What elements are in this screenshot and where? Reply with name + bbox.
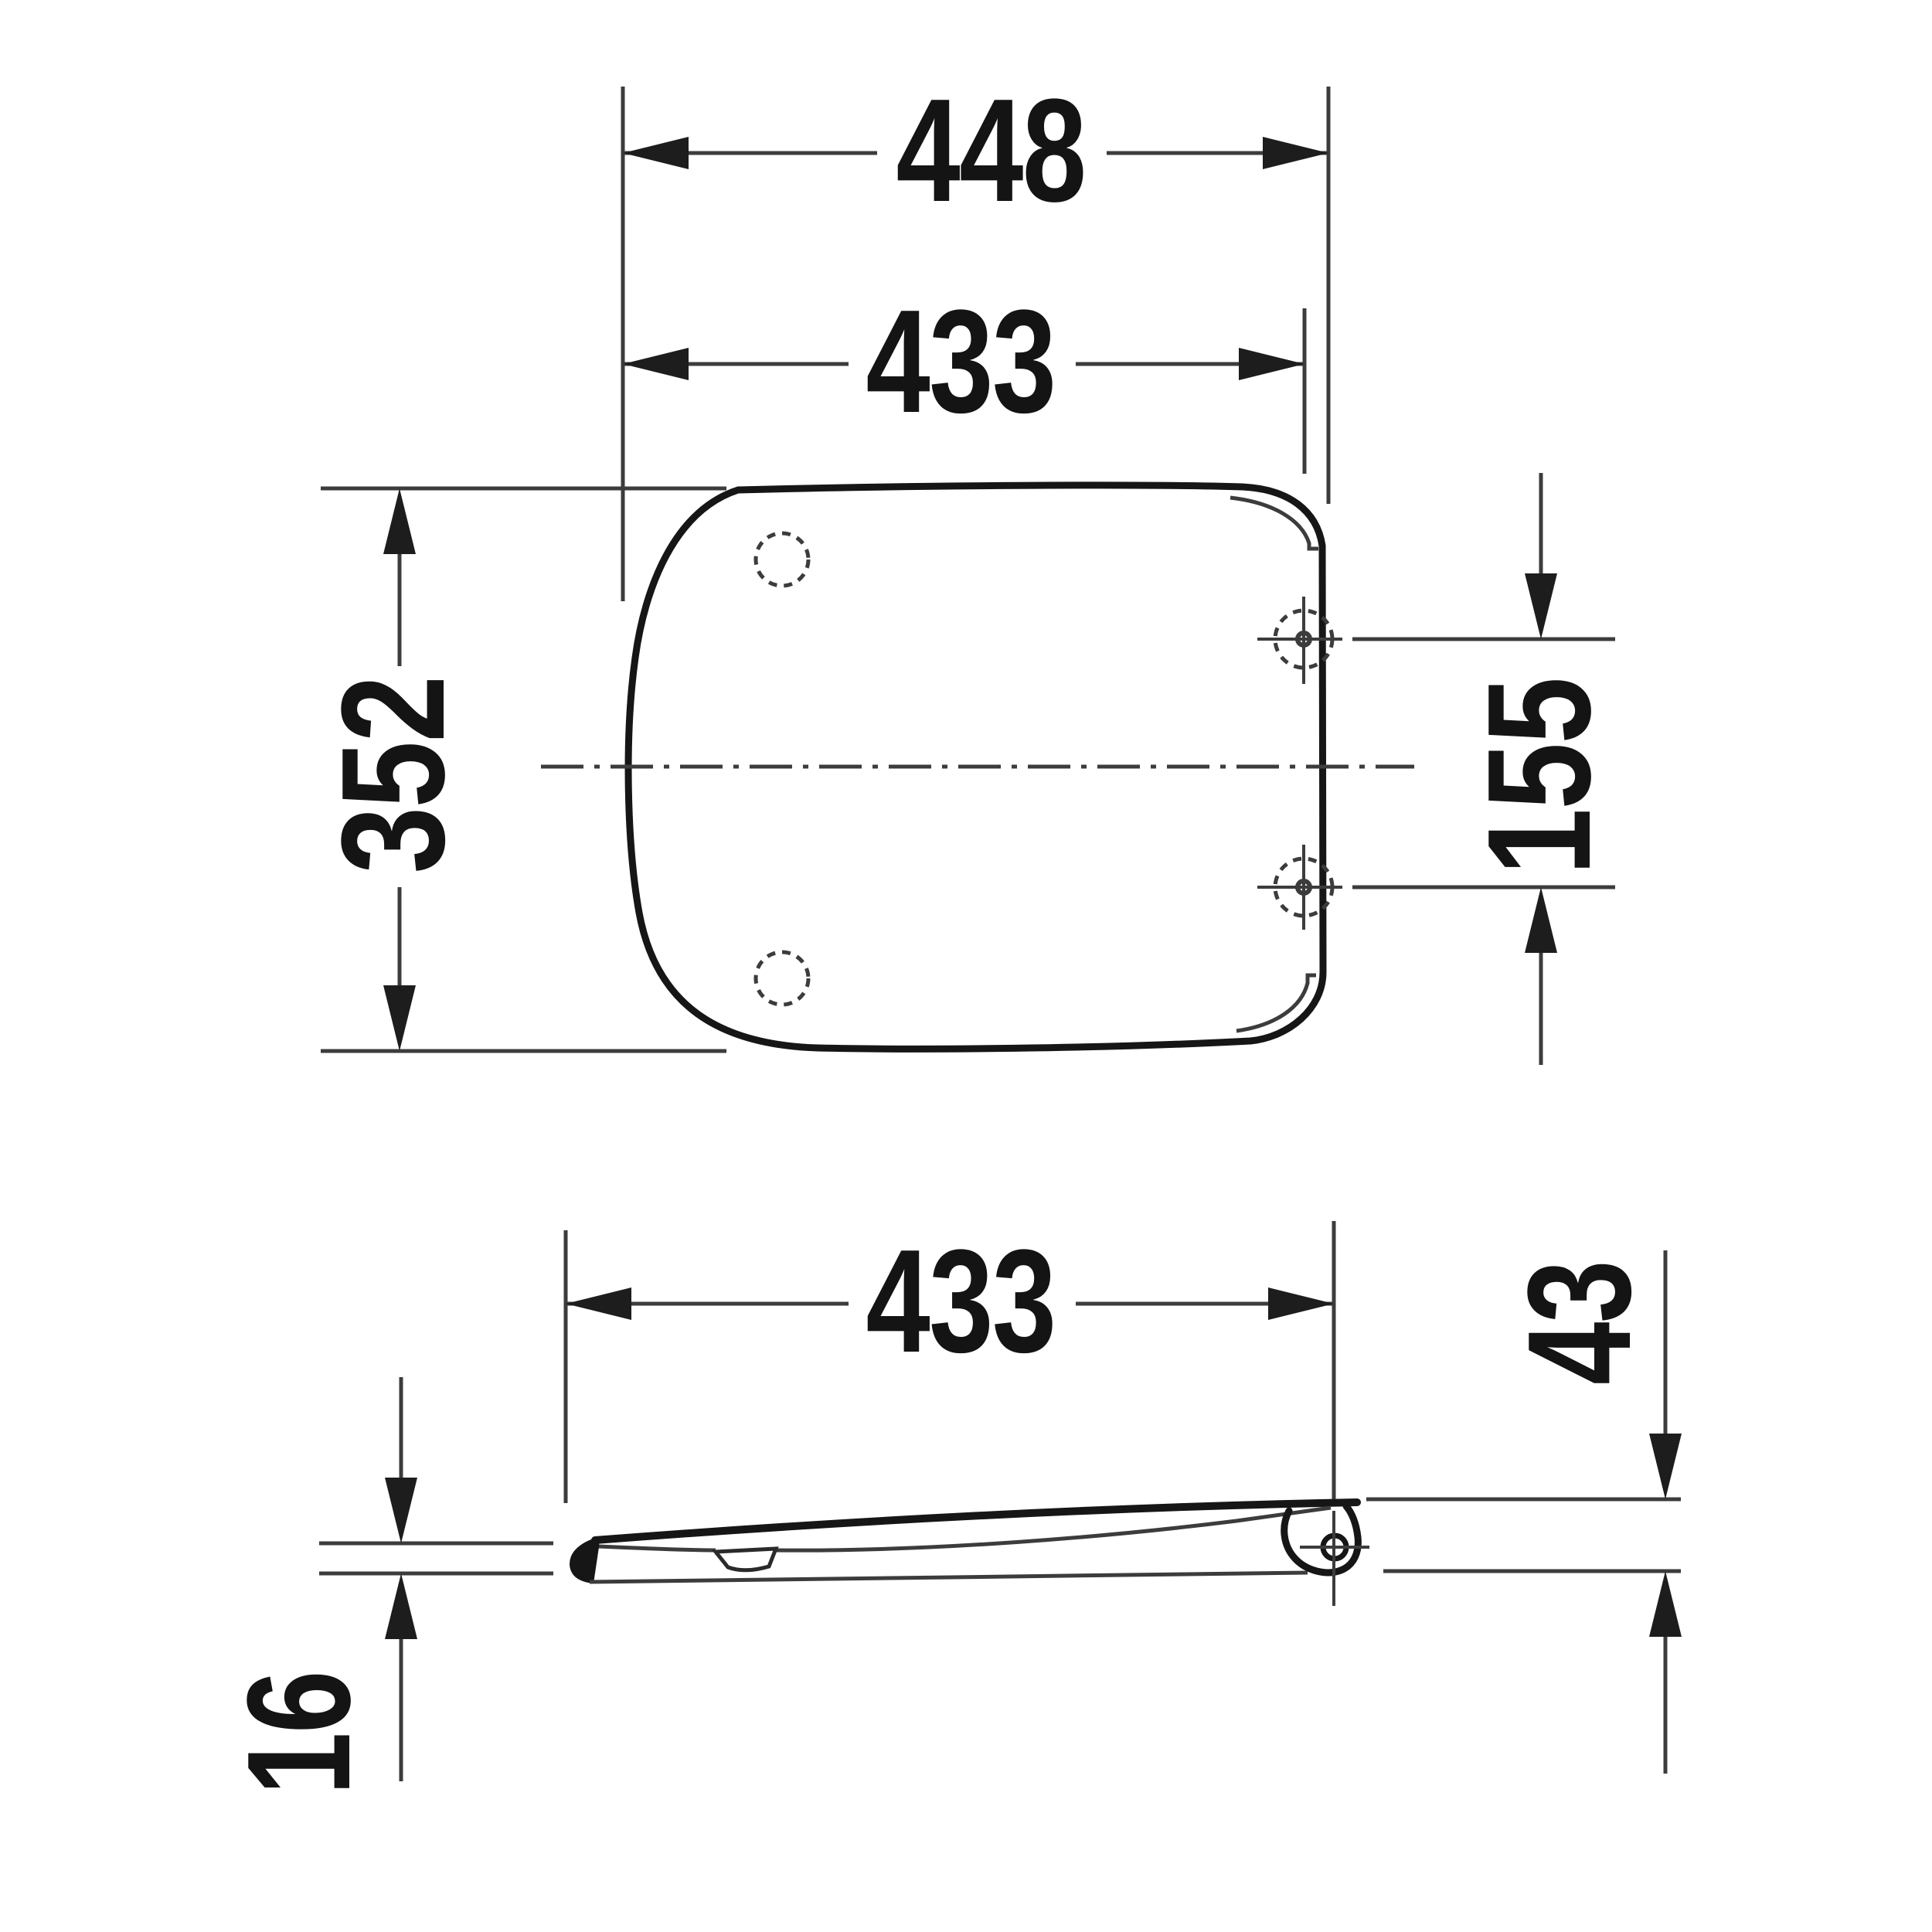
hinge-hole-bottom — [1257, 845, 1342, 930]
dim-43-label: 43 — [1498, 1261, 1662, 1385]
dimension-drawing-canvas: 448 433 352 155 — [0, 0, 1932, 1932]
dim-433-side-label: 433 — [866, 1219, 1056, 1383]
dim-433-plan-arrow-right — [1239, 348, 1304, 380]
dim-16-label: 16 — [217, 1672, 381, 1795]
bumper-bottom-left — [756, 952, 808, 1005]
dim-43: 43 — [1366, 1250, 1682, 1774]
lid-edge-bottom-right — [1236, 975, 1316, 1031]
dim-155-arrow-up — [1525, 887, 1557, 953]
dim-155: 155 — [1352, 473, 1621, 1065]
side-bottom-edge — [590, 1573, 1308, 1582]
dim-448-arrow-left — [623, 137, 689, 169]
dim-433-side: 433 — [566, 1219, 1334, 1503]
dim-43-arrow-down — [1649, 1434, 1682, 1499]
dim-155-label: 155 — [1458, 679, 1621, 876]
dim-43-arrow-up — [1649, 1571, 1682, 1637]
dim-433-side-arrow-right — [1268, 1287, 1334, 1320]
dim-352: 352 — [311, 488, 726, 1051]
bumper-top-left — [756, 533, 808, 586]
drawing-svg: 448 433 352 155 — [0, 0, 1932, 1932]
side-front-face — [570, 1536, 600, 1583]
side-bumper — [716, 1549, 776, 1570]
dim-433-side-arrow-left — [566, 1287, 631, 1320]
dim-155-arrow-down — [1525, 573, 1557, 639]
dim-448-label: 448 — [896, 69, 1086, 233]
dim-433-plan-label: 433 — [866, 280, 1056, 444]
side-view: 433 43 16 — [217, 1219, 1682, 1795]
plan-view: 448 433 352 155 — [311, 69, 1621, 1065]
dim-16-arrow-down — [385, 1478, 417, 1543]
dim-16: 16 — [217, 1377, 553, 1795]
dim-16-arrow-up — [385, 1573, 417, 1639]
dim-352-label: 352 — [311, 677, 475, 874]
dim-433-plan: 433 — [623, 280, 1304, 474]
dim-448-arrow-right — [1263, 137, 1328, 169]
side-ring-line-front — [598, 1546, 716, 1550]
dim-352-arrow-down — [383, 985, 416, 1051]
hinge-hole-top — [1257, 597, 1342, 684]
side-hinge-hook — [1284, 1506, 1359, 1573]
lid-edge-top-right — [1230, 498, 1318, 549]
dim-352-arrow-up — [383, 488, 416, 554]
dim-433-plan-arrow-left — [623, 348, 689, 380]
